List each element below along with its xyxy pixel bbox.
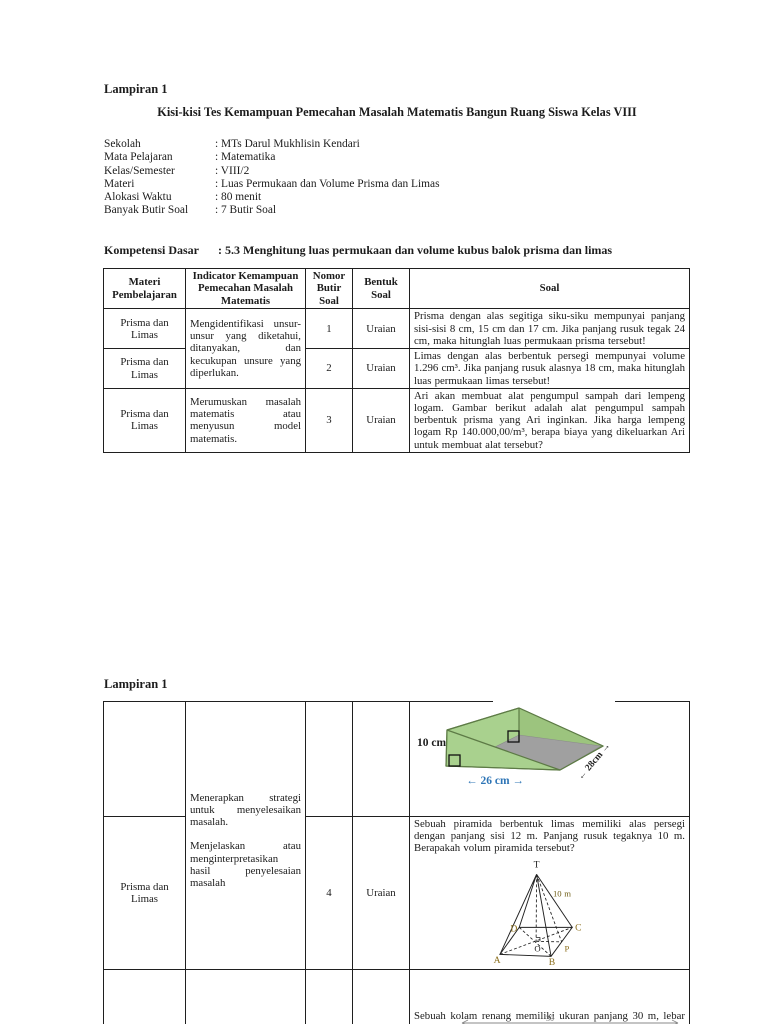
table-row: Prisma dan Limas Mengidentifikasi unsur-… — [104, 309, 690, 349]
cell-soal-2: Limas dengan alas berbentuk persegi memp… — [410, 349, 690, 389]
header-bentuk-soal: Bentuk Soal — [353, 269, 410, 309]
table-header-row: Materi Pembelajaran Indicator Kemampuan … — [104, 269, 690, 309]
kompetensi-dasar-label: Kompetensi Dasar — [104, 243, 218, 258]
pyramid-apex-label: T — [534, 859, 540, 870]
info-value: : 7 Butir Soal — [215, 204, 276, 217]
cell-bentuk-2: Uraian — [353, 349, 410, 389]
cell-nomor-5 — [306, 969, 353, 1024]
pyramid-figure: T 10 m D C A B O P — [478, 857, 685, 968]
section-heading-lampiran-1-page2: Lampiran 1 — [104, 677, 168, 692]
cell-indicator-1: Mengidentifikasi unsur-unsur yang diketa… — [186, 309, 306, 389]
cell-materi-3: Prisma dan Limas — [104, 388, 186, 452]
info-row-mata-pelajaran: Mata Pelajaran : Matematika — [104, 151, 440, 164]
info-label: Alokasi Waktu — [104, 191, 215, 204]
kompetensi-dasar-line: Kompetensi Dasar : 5.3 Menghitung luas p… — [104, 243, 612, 258]
info-value: : 80 menit — [215, 191, 261, 204]
info-row-materi: Materi : Luas Permukaan dan Volume Prism… — [104, 178, 440, 191]
page-title: Kisi-kisi Tes Kemampuan Pemecahan Masala… — [104, 105, 690, 120]
cell-materi-1: Prisma dan Limas — [104, 309, 186, 349]
info-label: Sekolah — [104, 138, 215, 151]
cell-materi-5: Prisma dan Limas — [104, 969, 186, 1024]
cell-soal-3: Ari akan membuat alat pengumpul sampah d… — [410, 388, 690, 452]
pyramid-center-o-label: O — [534, 943, 540, 953]
cell-bentuk-1: Uraian — [353, 309, 410, 349]
cell-bentuk-cont — [353, 702, 410, 817]
pool-dimension-label: 30 — [546, 1014, 554, 1023]
cell-nomor-4: 4 — [306, 817, 353, 970]
pyramid-vertex-b-label: B — [549, 957, 555, 965]
pyramid-point-p-label: P — [565, 943, 570, 953]
cell-bentuk-3: Uraian — [353, 388, 410, 452]
cell-indicator-5 — [186, 969, 306, 1024]
cell-materi-2: Prisma dan Limas — [104, 349, 186, 389]
pyramid-edge-length-label: 10 m — [553, 888, 571, 898]
kompetensi-dasar-value: : 5.3 Menghitung luas permukaan dan volu… — [218, 243, 612, 258]
table-row: Prisma dan Limas Merumuskan masalah mate… — [104, 388, 690, 452]
info-value: : MTs Darul Mukhlisin Kendari — [215, 138, 360, 151]
info-row-kelas-semester: Kelas/Semester : VIII/2 — [104, 165, 440, 178]
document-page: Lampiran 1 Kisi-kisi Tes Kemampuan Pemec… — [0, 0, 768, 1024]
info-label: Kelas/Semester — [104, 165, 215, 178]
header-soal: Soal — [410, 269, 690, 309]
cell-materi-4: Prisma dan Limas — [104, 817, 186, 970]
info-value: : Matematika — [215, 151, 275, 164]
info-row-alokasi-waktu: Alokasi Waktu : 80 menit — [104, 191, 440, 204]
header-nomor-butir-soal: Nomor Butir Soal — [306, 269, 353, 309]
cell-indicator-3: Merumuskan masalah matematis atau menyus… — [186, 388, 306, 452]
pool-figure-partial: 30 — [450, 1013, 690, 1024]
pyramid-vertex-a-label: A — [494, 955, 501, 965]
prism-height-label: 10 cm — [417, 737, 446, 749]
info-row-sekolah: Sekolah : MTs Darul Mukhlisin Kendari — [104, 138, 440, 151]
indicator-paragraph-2: Menjelaskan atau menginterpretasikan has… — [190, 840, 301, 889]
pool-dimension-line — [462, 1020, 678, 1024]
section-heading-lampiran-1: Lampiran 1 — [104, 82, 168, 97]
header-materi-pembelajaran: Materi Pembelajaran — [104, 269, 186, 309]
soal-4-text: Sebuah piramida berbentuk limas memiliki… — [414, 818, 685, 855]
cell-nomor-2: 2 — [306, 349, 353, 389]
pyramid-drawing: T 10 m D C A B O P — [478, 857, 600, 965]
kisi-kisi-table-page1: Materi Pembelajaran Indicator Kemampuan … — [103, 268, 690, 453]
info-value: : VIII/2 — [215, 165, 249, 178]
cell-nomor-cont — [306, 702, 353, 817]
indicator-paragraph-1: Menerapkan strategi untuk menyelesaikan … — [190, 792, 301, 829]
pyramid-vertex-c-label: C — [575, 922, 581, 933]
cell-nomor-3: 3 — [306, 388, 353, 452]
header-indicator: Indicator Kemampuan Pemecahan Masalah Ma… — [186, 269, 306, 309]
info-value: : Luas Permukaan dan Volume Prisma dan L… — [215, 178, 440, 191]
info-label: Banyak Butir Soal — [104, 204, 215, 217]
cell-soal-1: Prisma dengan alas segitiga siku-siku me… — [410, 309, 690, 349]
prism-width-label: ← 26 cm → — [466, 775, 524, 787]
prism-figure: 10 cm ← 26 cm → ← 28cm → — [415, 685, 615, 803]
cell-materi-cont — [104, 702, 186, 817]
cell-nomor-1: 1 — [306, 309, 353, 349]
cell-soal-4: Sebuah piramida berbentuk limas memiliki… — [410, 817, 690, 970]
info-label: Mata Pelajaran — [104, 151, 215, 164]
pyramid-vertex-d-label: D — [510, 923, 517, 934]
cell-bentuk-5 — [353, 969, 410, 1024]
document-info-block: Sekolah : MTs Darul Mukhlisin Kendari Ma… — [104, 138, 440, 218]
cell-bentuk-4: Uraian — [353, 817, 410, 970]
info-row-banyak-butir-soal: Banyak Butir Soal : 7 Butir Soal — [104, 204, 440, 217]
info-label: Materi — [104, 178, 215, 191]
cell-indicator-cont: Menerapkan strategi untuk menyelesaikan … — [186, 702, 306, 970]
